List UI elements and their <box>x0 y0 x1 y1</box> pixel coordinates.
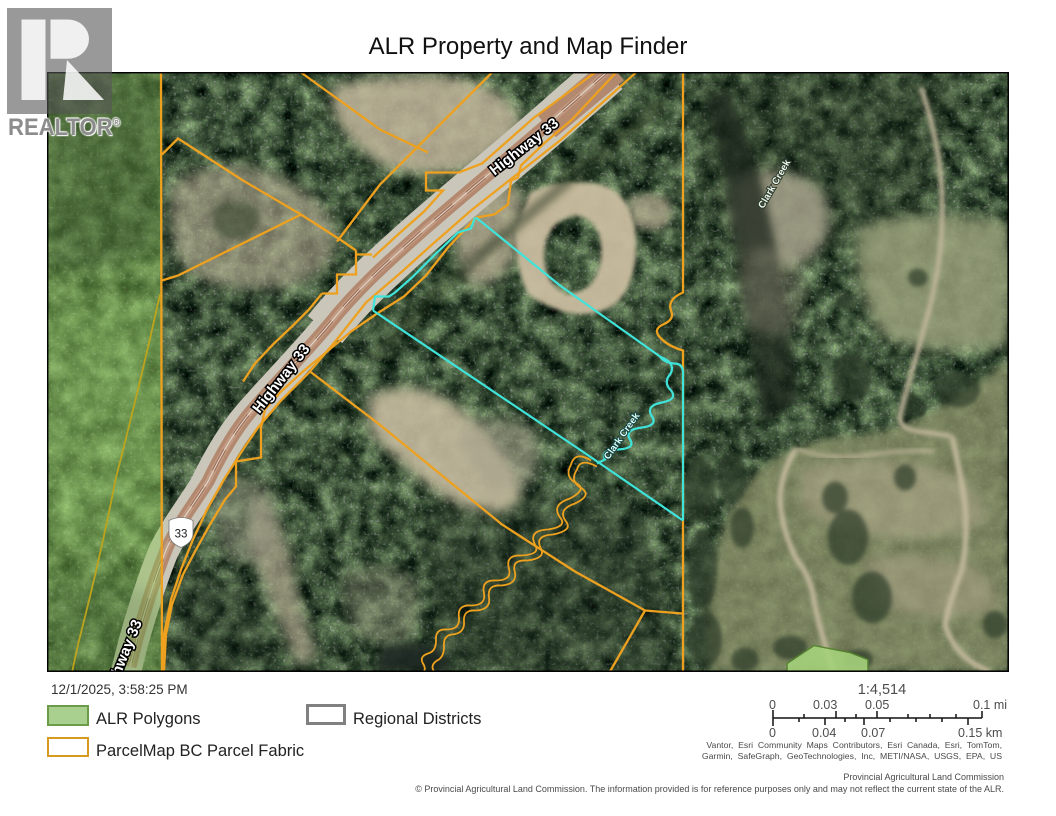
svg-text:33: 33 <box>175 529 188 541</box>
